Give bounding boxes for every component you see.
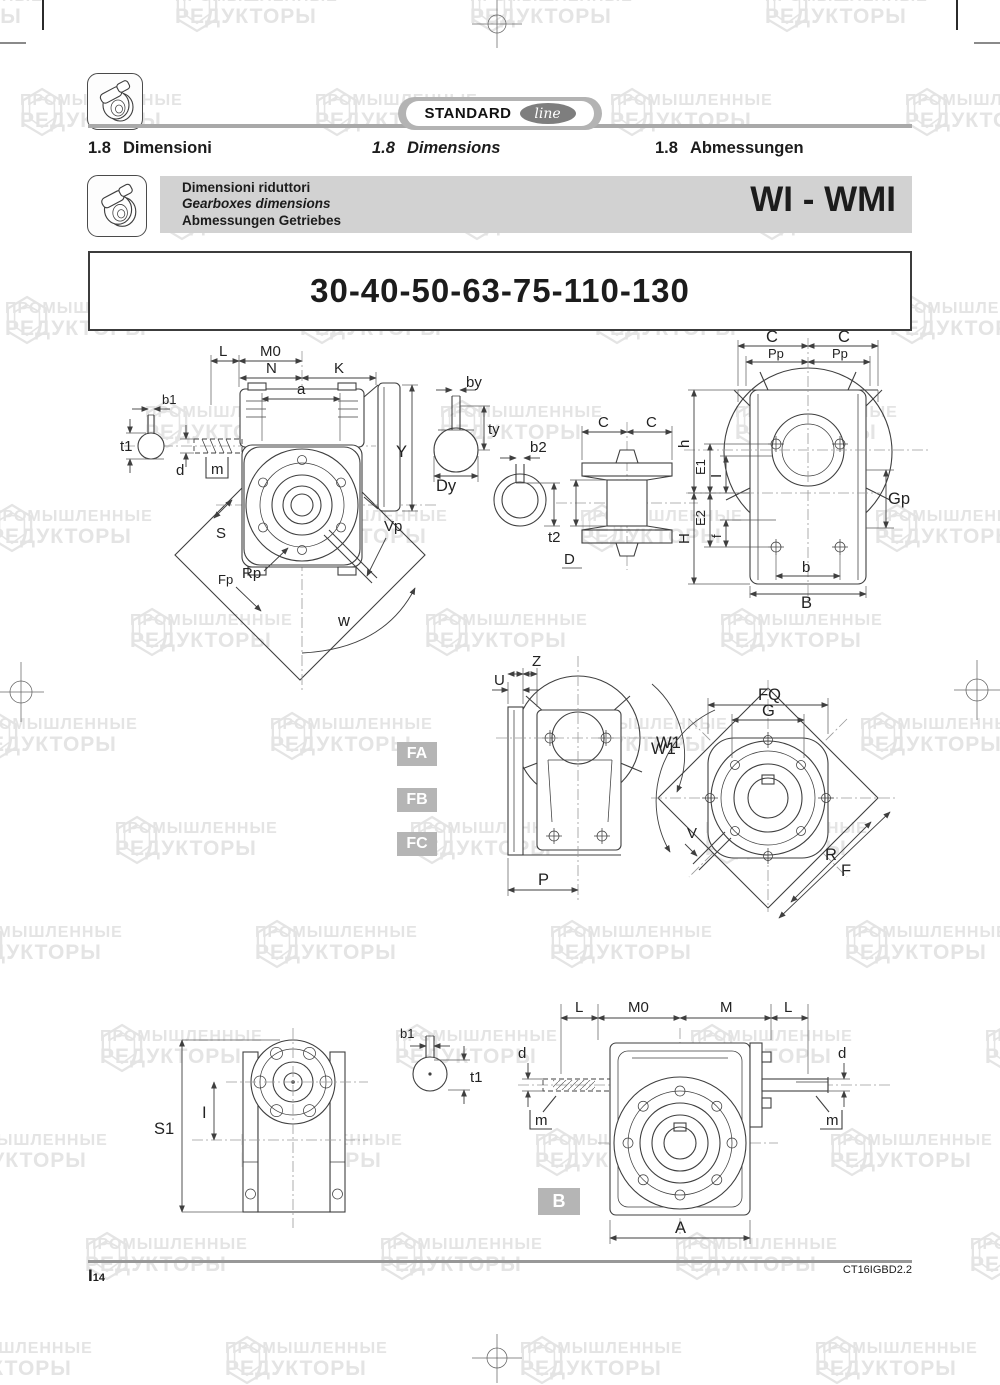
dim-E2: E2 [693, 510, 708, 526]
dim-Pp: Pp [768, 346, 784, 361]
dim-Gp: Gp [888, 490, 910, 508]
dim-S: S [216, 525, 226, 542]
worm-gear-icon [93, 181, 141, 231]
dim-I: I [202, 1104, 207, 1122]
crop-mark-top-left-h [0, 42, 26, 44]
crop-mark-top-left-v [42, 0, 44, 30]
dim-a: a [297, 381, 306, 398]
mount-label-fc-text: FC [406, 835, 427, 853]
registration-mark-bottom [467, 1332, 527, 1383]
dim-h: h [676, 440, 693, 448]
dim-U: U [494, 672, 505, 689]
dim-A: A [675, 1219, 686, 1237]
size-title: 30-40-50-63-75-110-130 [310, 272, 690, 310]
mount-label-fa: FA [397, 742, 437, 766]
heading-dimensions: 1.8Dimensions [372, 139, 500, 158]
dim-F: F [841, 862, 851, 880]
footer-rule [88, 1260, 912, 1263]
dim-K: K [334, 360, 344, 377]
dim-L: L [784, 999, 792, 1016]
dim-C: C [766, 328, 778, 346]
dim-t1: t1 [470, 1069, 483, 1086]
dim-I: I [708, 474, 725, 478]
dim-V: V [687, 825, 697, 842]
dim-by: by [466, 374, 482, 391]
heading-label: Abmessungen [690, 139, 804, 157]
mount-label-b: B [538, 1188, 580, 1215]
registration-mark-right [950, 656, 1000, 724]
dim-P: P [538, 871, 549, 889]
dim-Rp: Rp [242, 565, 261, 582]
dim-m: m [826, 1112, 839, 1129]
dim-B: B [801, 594, 812, 612]
product-bar: Dimensioni riduttori Gearboxes dimension… [160, 176, 912, 233]
standard-line-logo-inner: STANDARD line [406, 101, 594, 126]
dim-L: L [219, 343, 227, 360]
dim-t1: t1 [120, 438, 133, 455]
drawing-shaft-b1: b1 t1 [392, 1022, 492, 1114]
footer-doc-code: CT16IGBD2.2 [612, 1264, 912, 1276]
dim-M0: M0 [260, 343, 281, 360]
dim-w: w [337, 612, 350, 630]
product-model: WI - WMI [750, 180, 896, 220]
heading-num: 1.8 [88, 139, 111, 157]
logo-line-text: line [520, 103, 576, 124]
dim-C: C [598, 414, 609, 431]
heading-num: 1.8 [372, 139, 395, 157]
dim-H: H [676, 533, 693, 544]
dim-D: D [564, 551, 575, 568]
mount-label-fa-text: FA [407, 745, 427, 763]
footer-page: I14 [88, 1266, 105, 1286]
dim-m: m [535, 1112, 548, 1129]
dim-Y: Y [396, 443, 407, 461]
dim-f: f [709, 534, 724, 538]
logo-standard-text: STANDARD [424, 105, 511, 122]
standard-line-logo: STANDARD line [398, 97, 602, 130]
heading-abmessungen: 1.8Abmessungen [655, 139, 804, 158]
size-title-box: 30-40-50-63-75-110-130 [88, 251, 912, 331]
dim-b1: b1 [400, 1026, 414, 1041]
dim-m: m [211, 461, 224, 478]
heading-num: 1.8 [655, 139, 678, 157]
mount-label-b-text: B [553, 1191, 566, 1212]
mount-label-fb: FB [397, 788, 437, 812]
dim-L: L [575, 999, 583, 1016]
dim-ty: ty [488, 421, 500, 438]
product-line-en: Gearboxes dimensions [182, 196, 341, 213]
product-line-it: Dimensioni riduttori [182, 180, 341, 197]
dim-R: R [825, 846, 837, 864]
heading-label: Dimensions [407, 139, 501, 157]
dim-Fp: Fp [218, 572, 233, 587]
dim-G: G [762, 702, 775, 720]
dim-Pp: Pp [832, 346, 848, 361]
gear-icon-box-top [87, 73, 143, 130]
dim-Dy: Dy [436, 477, 457, 495]
mount-label-fc: FC [397, 832, 437, 856]
dim-Z: Z [532, 653, 541, 670]
gear-icon-box-section [87, 175, 147, 237]
dim-C: C [838, 328, 850, 346]
drawing-front-view: C C Pp Pp h E1 I E2 f H Gp b [680, 332, 936, 608]
dim-C: C [646, 414, 657, 431]
drawing-rear-view: S1 I [130, 1022, 380, 1234]
dim-M0: M0 [628, 999, 649, 1016]
crop-mark-top-right-h [974, 42, 1000, 44]
drawing-flange-face: FQ G W1 V R F [645, 672, 915, 918]
dim-N: N [266, 360, 277, 377]
footer-page-number: 14 [93, 1272, 105, 1284]
drawing-top-view: L M0 M L d d m m A [498, 992, 898, 1260]
dim-b2: b2 [530, 439, 547, 456]
dim-Vp: Vp [384, 518, 402, 535]
registration-mark-top [467, 0, 527, 52]
heading-dimensioni: 1.8Dimensioni [88, 139, 212, 158]
dim-W1: W1 [651, 740, 676, 758]
dim-d: d [838, 1045, 846, 1062]
dim-d: d [518, 1045, 526, 1062]
product-line-de: Abmessungen Getriebes [182, 213, 341, 230]
worm-gear-icon [92, 78, 138, 125]
mount-label-fb-text: FB [406, 791, 427, 809]
dim-b1: b1 [162, 392, 176, 407]
dim-d: d [176, 462, 184, 479]
registration-mark-left [0, 658, 52, 726]
dim-b: b [802, 559, 810, 576]
dim-S1: S1 [154, 1120, 174, 1138]
crop-mark-top-right-v [956, 0, 958, 30]
dim-M: M [720, 999, 733, 1016]
heading-label: Dimensioni [123, 139, 212, 157]
dim-E1: E1 [693, 459, 708, 475]
